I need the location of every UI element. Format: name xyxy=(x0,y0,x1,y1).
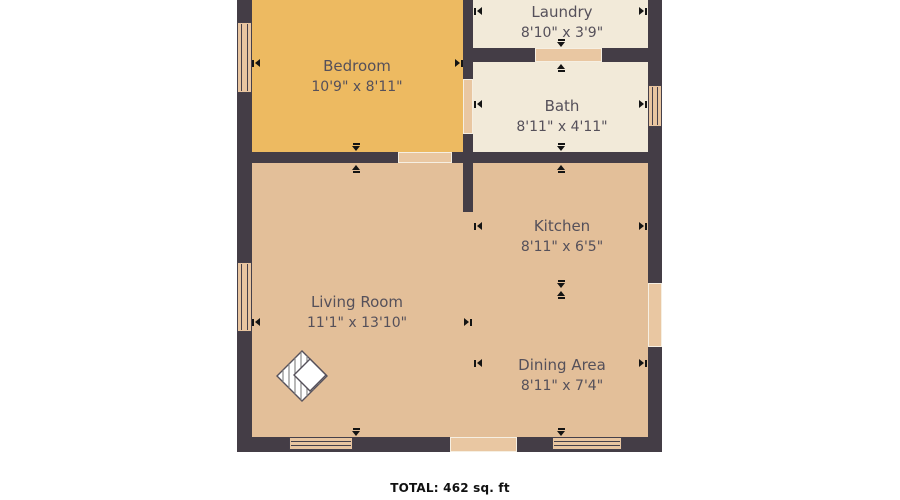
door-opening-bedroom xyxy=(398,152,452,163)
room-label-living-room: Living Room 11'1" x 13'10" xyxy=(307,292,407,334)
dim-arrow-dining-bottom xyxy=(557,428,566,436)
dim-arrow-laundry-right xyxy=(639,7,647,16)
wall-right-exterior xyxy=(648,0,662,452)
dim-arrow-living-bottom xyxy=(352,428,361,436)
dim-arrow-kitchen-top xyxy=(557,165,566,173)
room-dims: 8'11" x 6'5" xyxy=(521,237,603,258)
dim-arrow-bedroom-left xyxy=(252,59,260,68)
dim-arrow-dining-top xyxy=(557,291,566,299)
diamond-hatch-icon xyxy=(275,349,329,403)
room-dims: 8'11" x 4'11" xyxy=(516,117,607,138)
dim-arrow-living-top xyxy=(352,165,361,173)
door-opening-right-exterior xyxy=(648,283,662,347)
door-opening-entry xyxy=(450,437,517,452)
room-name: Bath xyxy=(516,96,607,117)
room-name: Kitchen xyxy=(521,216,603,237)
wall-kitchen-stub xyxy=(463,163,473,212)
door-opening-laundry-bath xyxy=(535,48,602,62)
dim-arrow-bath-top xyxy=(557,64,566,72)
dim-arrow-kitchen-bottom xyxy=(557,280,566,288)
room-name: Living Room xyxy=(307,292,407,313)
room-name: Bedroom xyxy=(311,56,402,77)
dim-arrow-kitchen-right xyxy=(639,222,647,231)
room-label-bath: Bath 8'11" x 4'11" xyxy=(516,96,607,138)
dim-arrow-bath-right xyxy=(639,100,647,109)
total-area-label: TOTAL: 462 sq. ft xyxy=(0,481,900,495)
floor-plan-canvas: Bedroom 10'9" x 8'11" Laundry 8'10" x 3'… xyxy=(0,0,900,500)
door-opening-bedroom-bath xyxy=(463,79,473,134)
room-name: Dining Area xyxy=(518,355,606,376)
dim-arrow-living-right xyxy=(464,318,472,327)
room-dims: 8'10" x 3'9" xyxy=(521,23,603,44)
window-living-left xyxy=(237,262,252,332)
room-label-kitchen: Kitchen 8'11" x 6'5" xyxy=(521,216,603,258)
window-bedroom-left xyxy=(237,22,252,93)
room-label-bedroom: Bedroom 10'9" x 8'11" xyxy=(311,56,402,98)
dim-arrow-dining-right xyxy=(639,359,647,368)
room-dims: 10'9" x 8'11" xyxy=(311,77,402,98)
room-name: Laundry xyxy=(521,2,603,23)
dim-arrow-living-left xyxy=(252,318,260,327)
dim-arrow-kitchen-left xyxy=(474,222,482,231)
window-living-bottom xyxy=(289,437,353,450)
dim-arrow-bedroom-right xyxy=(455,59,463,68)
window-dining-bottom xyxy=(552,437,622,450)
room-label-dining-area: Dining Area 8'11" x 7'4" xyxy=(518,355,606,397)
dim-arrow-laundry-left xyxy=(474,7,482,16)
room-dims: 8'11" x 7'4" xyxy=(518,376,606,397)
dim-arrow-bath-bottom xyxy=(557,143,566,151)
window-bath-right xyxy=(648,85,662,127)
dim-arrow-bedroom-bottom xyxy=(352,143,361,151)
room-dims: 11'1" x 13'10" xyxy=(307,313,407,334)
room-label-laundry: Laundry 8'10" x 3'9" xyxy=(521,2,603,44)
dim-arrow-bath-left xyxy=(474,100,482,109)
dim-arrow-dining-left xyxy=(474,359,482,368)
